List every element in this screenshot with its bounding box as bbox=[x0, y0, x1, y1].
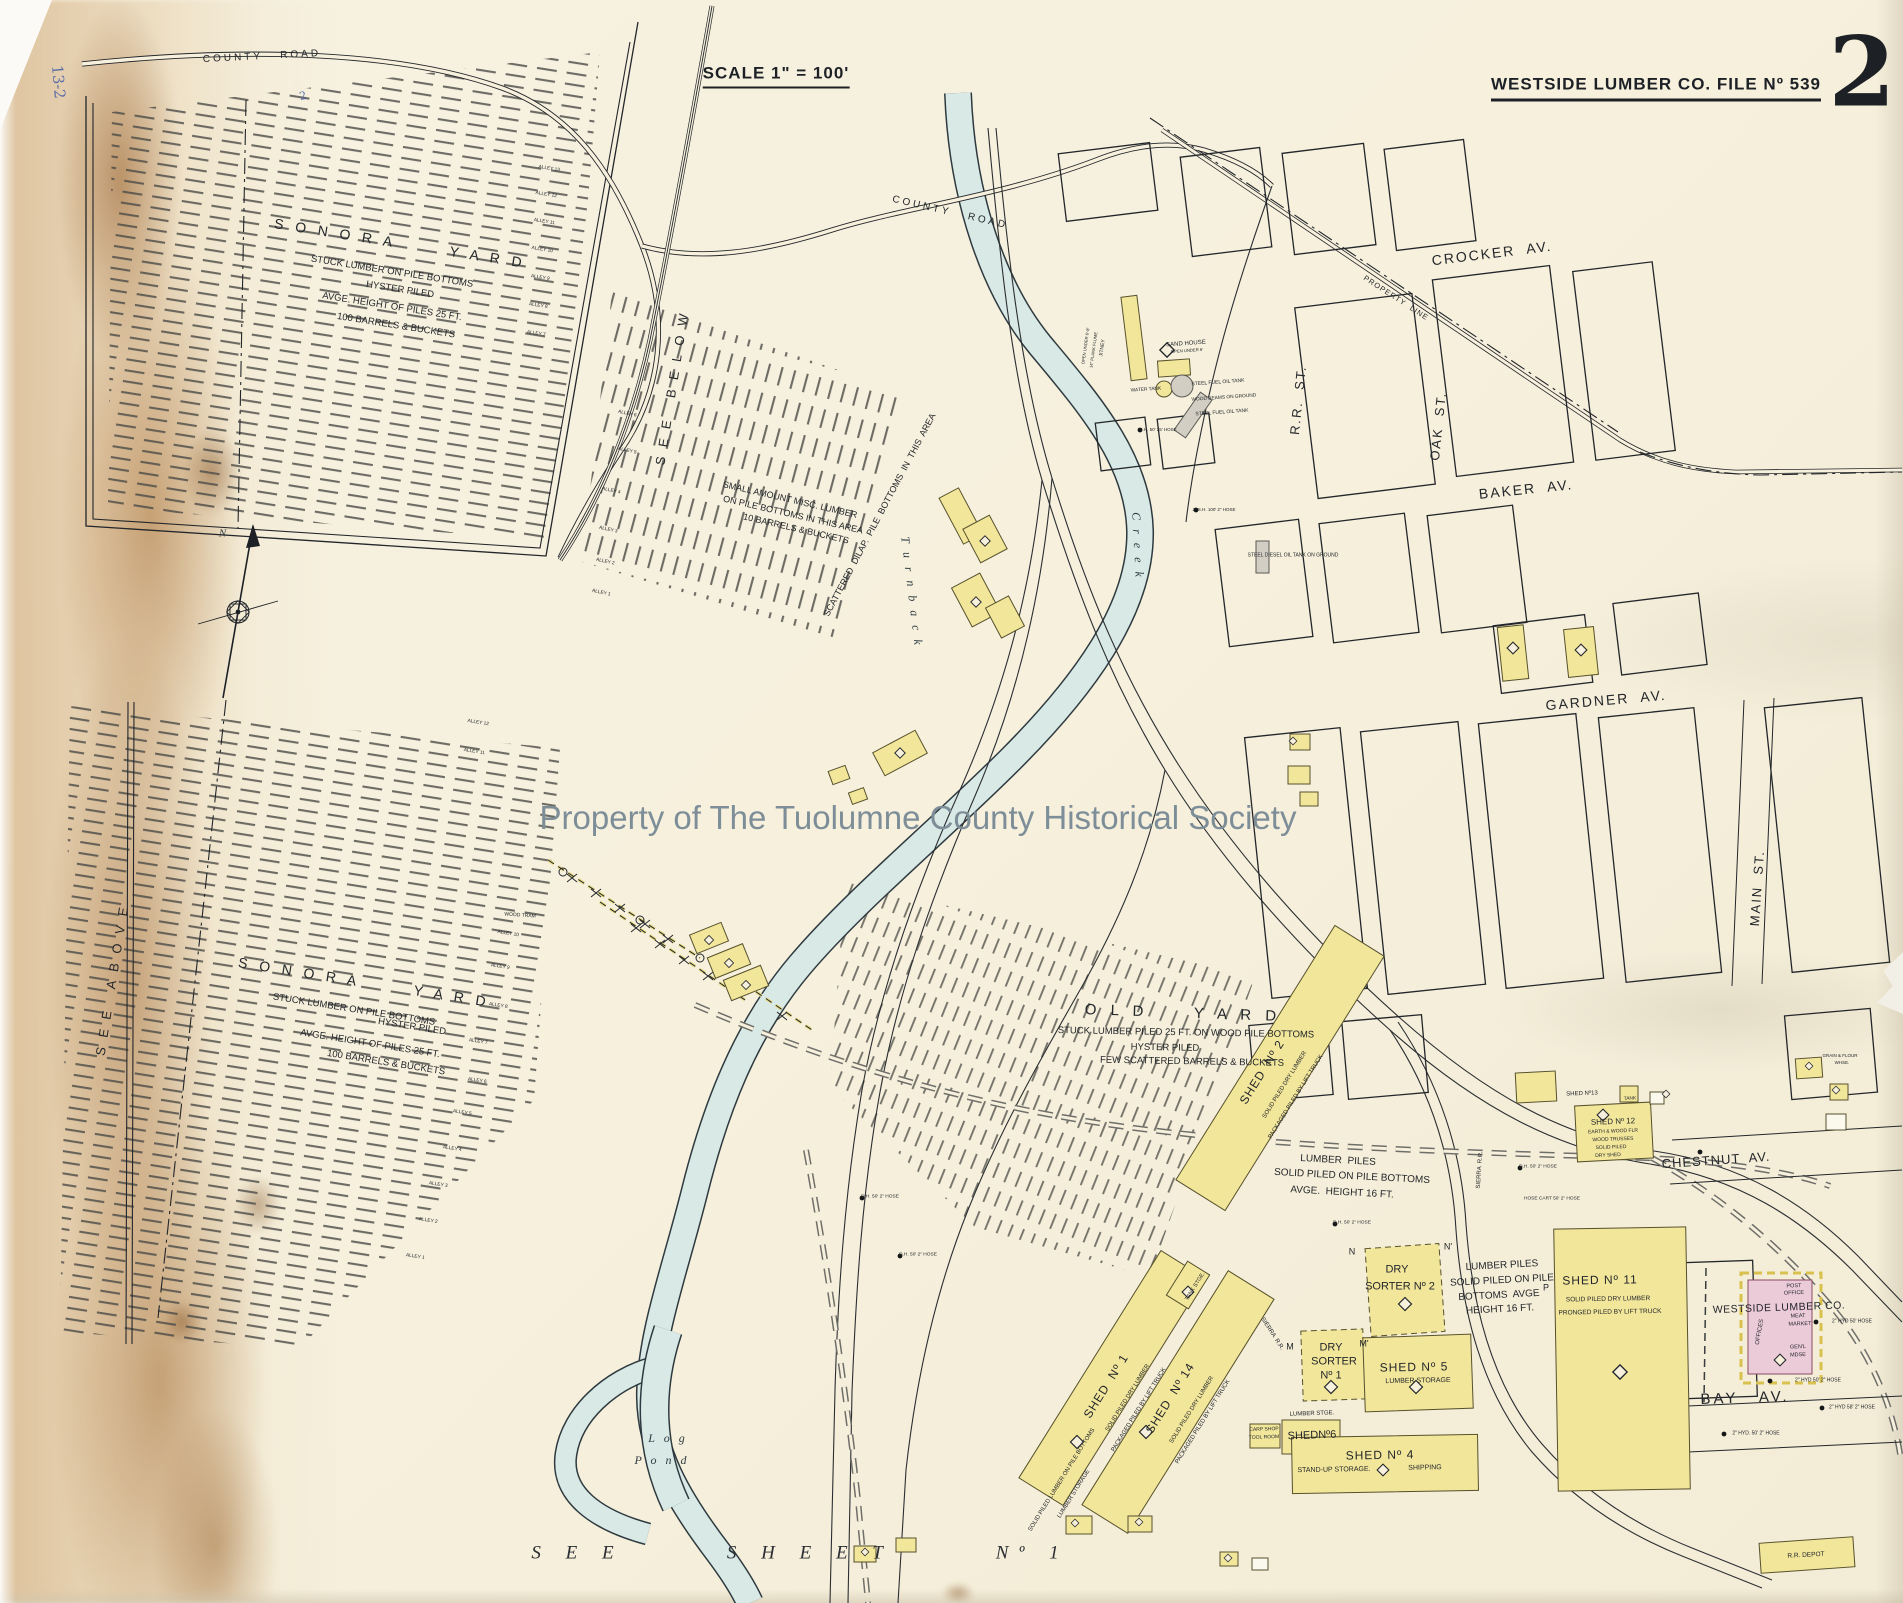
label-shed-4-note-2: SHIPPING bbox=[1408, 1464, 1442, 1472]
sand-house-building bbox=[1157, 359, 1190, 377]
label-m-mark: M bbox=[1286, 1343, 1294, 1352]
label-hyd-2: 2" HYD 50' 2" HOSE bbox=[1795, 1379, 1841, 1384]
label-shed-4: SHED Nº 4 bbox=[1346, 1448, 1415, 1461]
label-hand-13-2: 13-2 bbox=[49, 65, 67, 100]
label-dh-note-4: D.H. 50' 2" HOSE bbox=[899, 1254, 937, 1259]
label-p-mark: P bbox=[1543, 1284, 1549, 1293]
label-dry-sorter-2b: SORTER Nº 2 bbox=[1365, 1282, 1435, 1293]
misc-lumber-piles bbox=[582, 292, 902, 640]
label-shed-5-note: LUMBER STORAGE bbox=[1385, 1377, 1450, 1385]
label-shed-6: SHEDNº6 bbox=[1288, 1430, 1337, 1443]
label-dry-sorter-1b: SORTER bbox=[1311, 1357, 1357, 1368]
label-meat-market-2: MARKET bbox=[1788, 1322, 1811, 1328]
label-creek-creek: C r e e k bbox=[1130, 512, 1146, 580]
label-hyd-1: 2" HYD 50' HOSE bbox=[1832, 1320, 1872, 1325]
label-genl-mdse-2: MDSE bbox=[1790, 1353, 1806, 1359]
label-n-prime-mark: N' bbox=[1444, 1243, 1452, 1252]
label-hose-cart: HOSE CART 50' 2" HOSE bbox=[1524, 1198, 1580, 1203]
old-yard-piles bbox=[830, 882, 1255, 1277]
label-hyd-4: 2" HYD 58' 2" HOSE bbox=[1829, 1406, 1875, 1411]
shed-13-building bbox=[1515, 1071, 1557, 1103]
scale-label: SCALE 1" = 100' bbox=[703, 64, 850, 89]
label-shed-12-note-4: DRY SHED bbox=[1595, 1153, 1621, 1159]
label-see-sheet: S E E S H E E T Nº 1 bbox=[531, 1544, 1068, 1563]
label-dh-note-3: D.H. 50' 2" HOSE bbox=[861, 1196, 899, 1201]
steel-fuel-tank-shape bbox=[1171, 375, 1193, 397]
flume-building bbox=[1121, 295, 1147, 380]
label-hose-note-2: 2" S.H. 100' 2" HOSE bbox=[1192, 508, 1235, 513]
label-dry-sorter-2a: DRY bbox=[1385, 1265, 1408, 1276]
label-shed-5: SHED Nº 5 bbox=[1380, 1360, 1449, 1373]
label-dh-note-2: D.H. 50' 2" HOSE bbox=[1519, 1166, 1557, 1171]
label-meat-market-1: MEAT bbox=[1790, 1314, 1805, 1320]
label-carp-shop-2: TOOL ROOM bbox=[1249, 1435, 1279, 1441]
label-log-pond-2: P o n d bbox=[634, 1454, 689, 1466]
property-line-railroad bbox=[1162, 130, 1902, 472]
label-dry-sorter-1a: DRY bbox=[1319, 1343, 1342, 1354]
label-hose-note-1: D.H. 50' 25' HOSE bbox=[1139, 428, 1176, 433]
map-file-title: WESTSIDE LUMBER CO. FILE Nº 539 bbox=[1491, 75, 1821, 102]
compass-rose bbox=[198, 524, 278, 698]
label-m-prime-mark: M' bbox=[1359, 1340, 1368, 1349]
label-grain-flour-1: GRAIN & FLOUR bbox=[1822, 1054, 1857, 1059]
label-n-mark: N bbox=[1349, 1248, 1356, 1257]
shed-11-building bbox=[1554, 1227, 1691, 1491]
label-dry-sorter-1c: Nº 1 bbox=[1320, 1371, 1341, 1382]
label-bay-av: BAY AV. bbox=[1700, 1389, 1789, 1407]
street-blocks bbox=[1058, 140, 1889, 1400]
label-dh-note-1: D.H. 50' 2" HOSE bbox=[1333, 1222, 1371, 1227]
label-shed-12: SHED Nº 12 bbox=[1591, 1117, 1636, 1127]
label-hyd-3: 2" HYD. 50' 2" HOSE bbox=[1732, 1432, 1779, 1437]
label-steel-diesel-tank: STEEL DIESEL OIL TANK ON GROUND bbox=[1248, 554, 1339, 559]
sanborn-map-sheet-2: COUNTY ROAD13-22S O N O R A Y A R DSTUCK… bbox=[0, 0, 1903, 1603]
label-post-office-2: OFFICE bbox=[1784, 1291, 1804, 1297]
label-genl-mdse-1: GEN'L bbox=[1790, 1345, 1806, 1351]
label-carp-shop-1: CARP SHOP bbox=[1249, 1427, 1279, 1433]
watermark: Property of The Tuolumne County Historic… bbox=[540, 799, 1297, 837]
label-shed-11: SHED Nº 11 bbox=[1562, 1273, 1638, 1286]
shed-4-building bbox=[1292, 1434, 1479, 1493]
label-old-yard-note-2: HYSTER PILED bbox=[1131, 1043, 1200, 1054]
label-compass-n: N bbox=[219, 529, 229, 540]
sheet-number: 2 bbox=[1829, 16, 1896, 129]
label-shed-13: SHED Nº13 bbox=[1566, 1090, 1598, 1097]
label-shed-4-note-1: STAND-UP STORAGE. bbox=[1297, 1466, 1370, 1474]
label-log-pond-1: L o g bbox=[648, 1432, 687, 1444]
label-tank-label: TANK bbox=[1624, 1097, 1637, 1102]
label-grain-flour-2: WHSE. bbox=[1835, 1061, 1850, 1066]
sonora-yard-2-piles bbox=[60, 706, 560, 1348]
